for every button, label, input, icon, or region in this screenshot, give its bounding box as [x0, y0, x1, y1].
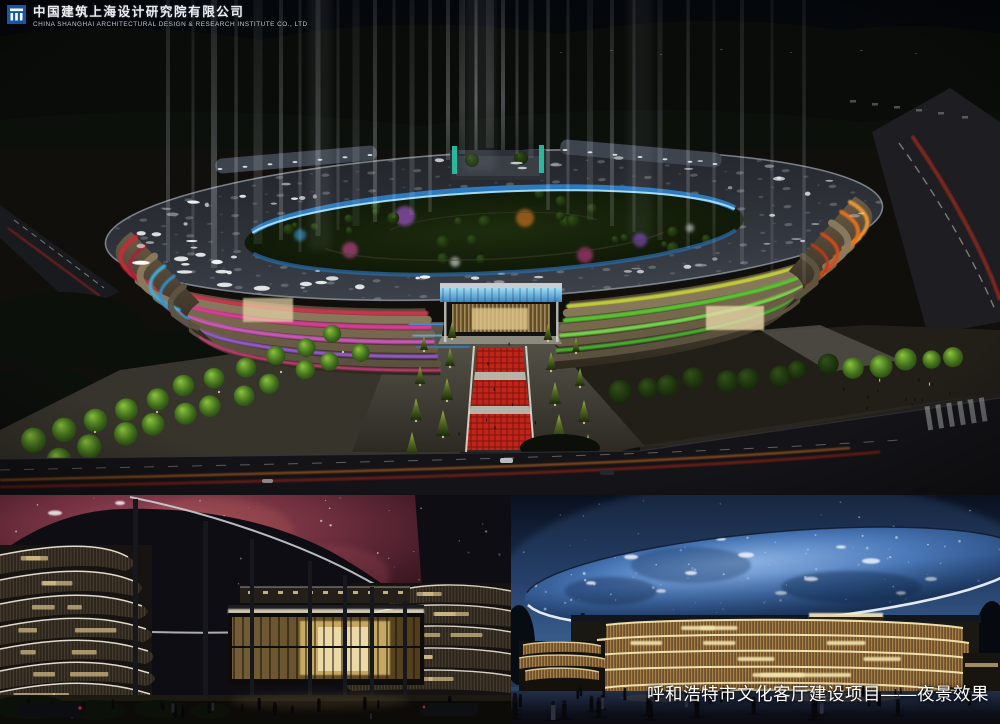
- person-silhouette: [208, 704, 211, 713]
- ceiling-downlight: [48, 511, 62, 516]
- person-silhouette: [258, 698, 261, 701]
- star: [583, 515, 584, 516]
- person-silhouette: [580, 686, 582, 688]
- person-silhouette: [377, 702, 379, 709]
- person-silhouette: [112, 701, 115, 709]
- nebula-star: [418, 579, 420, 581]
- star: [560, 514, 561, 515]
- nebula-star: [388, 557, 390, 559]
- lit-pod: [863, 657, 901, 661]
- person-silhouette: [562, 704, 567, 719]
- company-logo: 中国建筑上海设计研究院有限公司 CHINA SHANGHAI ARCHITECT…: [7, 5, 308, 28]
- nebula-star: [377, 552, 379, 554]
- person-silhouette: [597, 701, 602, 717]
- person-silhouette: [603, 689, 605, 697]
- person-silhouette: [208, 702, 211, 705]
- star: [643, 500, 644, 501]
- window-light: [26, 556, 48, 561]
- window-light: [32, 605, 55, 610]
- nebula-render-svg: [0, 495, 511, 724]
- deck-light: [398, 591, 403, 594]
- car: [420, 703, 478, 716]
- nebula-star: [199, 500, 201, 502]
- person-silhouette: [513, 698, 518, 703]
- person-silhouette: [551, 705, 556, 720]
- star: [238, 583, 239, 584]
- star: [420, 507, 422, 509]
- nebula-star: [339, 497, 341, 499]
- window-light: [33, 672, 55, 677]
- person-silhouette: [590, 699, 594, 712]
- taillight: [423, 706, 426, 709]
- company-name-en: CHINA SHANGHAI ARCHITECTURAL DESIGN & RE…: [33, 21, 308, 28]
- person-silhouette: [597, 697, 601, 701]
- project-caption: 呼和浩特市文化客厅建设项目——夜景效果: [647, 681, 989, 706]
- lit-pod: [703, 641, 736, 645]
- star: [840, 501, 842, 503]
- window-light: [70, 672, 108, 677]
- nebula-star: [93, 497, 94, 498]
- person-silhouette: [181, 704, 184, 707]
- nebula-star: [325, 500, 326, 501]
- star: [969, 510, 971, 512]
- nebula-star: [37, 504, 38, 505]
- nebula-ceiling-render: [0, 495, 511, 724]
- person-silhouette: [377, 700, 379, 702]
- west-annex: [519, 641, 605, 691]
- deck-light: [383, 591, 388, 594]
- star: [720, 503, 721, 504]
- person-silhouette: [577, 688, 579, 690]
- person-silhouette: [258, 700, 261, 710]
- person-silhouette: [363, 697, 366, 700]
- window-light: [41, 581, 56, 586]
- person-silhouette: [212, 703, 215, 711]
- window-light: [451, 633, 483, 637]
- star: [498, 553, 500, 555]
- star: [523, 551, 525, 553]
- window-light: [75, 628, 116, 633]
- person-silhouette: [172, 701, 175, 704]
- deck-light: [323, 591, 328, 594]
- deck-light: [263, 591, 268, 594]
- person-silhouette: [513, 702, 518, 719]
- star: [638, 533, 640, 535]
- annex-floors: [519, 642, 605, 681]
- lit-pod: [700, 626, 737, 630]
- window-light: [72, 650, 97, 655]
- star: [569, 545, 570, 546]
- presentation-board: 中国建筑上海设计研究院有限公司 CHINA SHANGHAI ARCHITECT…: [0, 0, 1000, 724]
- hall-roofline: [228, 605, 424, 609]
- aerial-night-render: [0, 0, 1000, 496]
- star: [599, 503, 601, 505]
- person-silhouette: [624, 688, 627, 691]
- star: [821, 514, 822, 515]
- aerial-render-svg: [0, 0, 1000, 496]
- star: [459, 540, 460, 541]
- person-silhouette: [291, 705, 293, 707]
- person-silhouette: [27, 699, 30, 702]
- person-silhouette: [317, 698, 320, 701]
- company-logo-icon: [7, 5, 26, 24]
- person-silhouette: [273, 702, 276, 705]
- person-silhouette: [370, 713, 372, 719]
- window-light: [423, 592, 442, 596]
- star: [485, 530, 487, 532]
- window-light: [21, 650, 36, 655]
- nebula-star: [249, 507, 250, 508]
- person-silhouette: [603, 687, 605, 689]
- lit-pod: [630, 641, 662, 645]
- person-silhouette: [519, 694, 522, 697]
- star: [482, 523, 484, 525]
- person-silhouette: [519, 697, 522, 708]
- person-silhouette: [161, 701, 163, 703]
- person-silhouette: [212, 700, 215, 703]
- lit-pod: [738, 657, 775, 661]
- upper-deck: [240, 587, 410, 603]
- nebula-star: [394, 566, 395, 567]
- nebula-star: [329, 508, 331, 510]
- deck-light: [278, 591, 283, 594]
- person-silhouette: [448, 696, 451, 699]
- person-silhouette: [241, 706, 243, 712]
- person-silhouette: [562, 700, 566, 704]
- person-silhouette: [551, 701, 555, 705]
- nebula-star: [413, 551, 414, 552]
- window-light: [67, 605, 81, 610]
- person-silhouette: [83, 702, 85, 704]
- person-silhouette: [590, 696, 593, 699]
- person-silhouette: [577, 691, 580, 699]
- person-silhouette: [580, 688, 583, 697]
- person-silhouette: [161, 703, 163, 709]
- lit-pod: [798, 673, 851, 677]
- person-silhouette: [174, 712, 176, 718]
- person-silhouette: [291, 707, 293, 714]
- person-silhouette: [51, 700, 54, 703]
- person-silhouette: [172, 703, 175, 712]
- person-silhouette: [623, 690, 626, 700]
- person-silhouette: [112, 699, 114, 701]
- ceiling-downlight: [115, 501, 125, 505]
- window-light: [424, 633, 440, 637]
- company-name-block: 中国建筑上海设计研究院有限公司 CHINA SHANGHAI ARCHITECT…: [33, 5, 308, 28]
- person-silhouette: [317, 701, 320, 712]
- lit-pod: [752, 673, 804, 677]
- star: [329, 563, 330, 564]
- wing-lit-band: [965, 663, 998, 667]
- glass-hall: [228, 587, 424, 685]
- company-name-zh: 中国建筑上海设计研究院有限公司: [33, 5, 308, 19]
- person-silhouette: [363, 699, 366, 709]
- nebula-star: [329, 524, 331, 526]
- window-light: [435, 612, 469, 616]
- person-silhouette: [370, 711, 372, 713]
- star: [240, 558, 242, 560]
- nebula-star: [15, 530, 17, 532]
- person-silhouette: [273, 705, 277, 716]
- vignette: [0, 0, 1000, 496]
- window-light: [18, 628, 37, 633]
- deck-light: [293, 591, 298, 594]
- star: [467, 552, 469, 554]
- window-light: [429, 677, 454, 681]
- taillight: [78, 706, 81, 709]
- lit-pod: [827, 641, 866, 645]
- deck-light: [353, 591, 358, 594]
- star: [858, 516, 860, 518]
- nebula-star: [389, 510, 390, 511]
- deck-light: [338, 591, 343, 594]
- person-silhouette: [241, 704, 243, 706]
- star: [585, 540, 586, 541]
- nebula-star: [320, 520, 322, 522]
- car: [18, 703, 84, 717]
- person-silhouette: [174, 710, 176, 712]
- person-silhouette: [181, 707, 184, 717]
- logo-glyph: [9, 7, 24, 22]
